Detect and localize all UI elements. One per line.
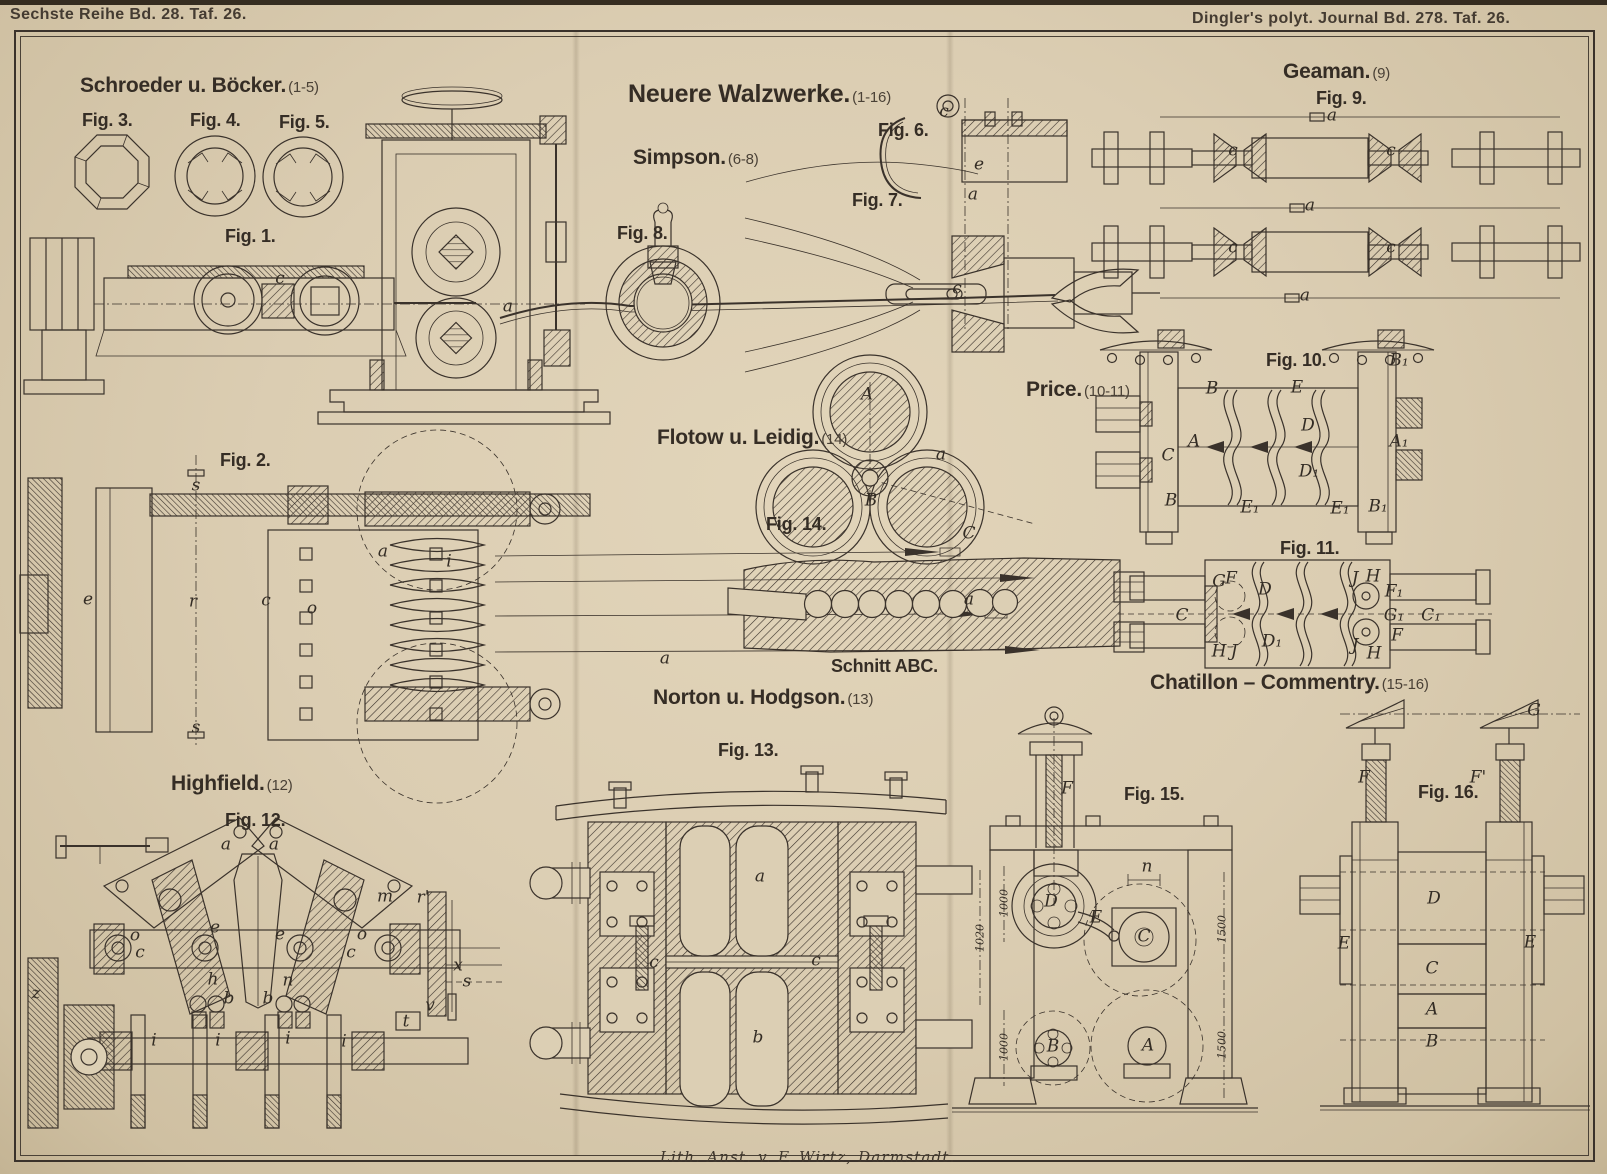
part-label-fig14: C (962, 526, 975, 543)
figure-title-fig15: Fig. 15. (1124, 784, 1184, 805)
part-label-fig12: b (224, 991, 235, 1008)
part-label-fig11: F (1391, 628, 1403, 645)
part-label-fig9: c (1386, 240, 1396, 257)
part-label-fig14: B (865, 493, 878, 510)
part-label-fig11: C (1175, 608, 1188, 625)
part-label-fig16: A (1426, 1002, 1438, 1019)
part-label-fig16: F (1358, 770, 1370, 787)
part-label-fig15: 1500 (1217, 1031, 1228, 1059)
section-label-norton: Norton u. Hodgson.(13) (653, 686, 873, 710)
part-label-fig2: a (660, 651, 670, 668)
part-label-fig16: B (1426, 1034, 1439, 1051)
part-label-fig2: i (446, 554, 451, 571)
part-label-fig2: s (192, 720, 201, 737)
part-label-fig12: x (453, 958, 463, 975)
part-label-fig9: c (1386, 143, 1396, 160)
part-label-fig11: G (1212, 574, 1226, 591)
part-label-fig1: a (503, 299, 513, 316)
part-label-fig15: D (1044, 894, 1058, 911)
part-label-fig12: e (210, 920, 220, 937)
part-label-fig12: m (377, 889, 393, 906)
part-label-fig10: B (1165, 493, 1178, 510)
figure-title-fig11: Fig. 11. (1280, 538, 1339, 559)
part-label-fig10: B₁ (1389, 353, 1408, 370)
plate-title: Neuere Walzwerke.(1-16) (628, 80, 891, 109)
label-layer: Sechste Reihe Bd. 28. Taf. 26. Dingler's… (0, 0, 1607, 1174)
part-label-fig12: n (283, 973, 294, 990)
part-label-fig15: C (1137, 929, 1150, 946)
part-label-fig12: s (463, 974, 472, 991)
section-label-schroeder: Schroeder u. Böcker.(1-5) (80, 74, 319, 98)
part-label-fig12: r' (417, 890, 430, 907)
part-label-fig11: J (1352, 638, 1359, 655)
part-label-fig12: v (425, 998, 435, 1015)
header-left: Sechste Reihe Bd. 28. Taf. 26. (10, 6, 247, 24)
part-label-fig6: e (974, 157, 984, 174)
part-label-fig9: c (1228, 240, 1238, 257)
part-label-fig10: E₁ (1240, 500, 1259, 517)
section-label-highfield: Highfield.(12) (171, 772, 293, 796)
part-label-fig12: b (263, 991, 274, 1008)
part-label-fig12: i (151, 1033, 156, 1050)
part-label-fig15: 1020 (975, 924, 986, 952)
figure-title-fig14: Fig. 14. (766, 514, 826, 535)
part-label-fig2: r (189, 594, 197, 611)
part-label-fig13: b (753, 1030, 764, 1047)
figure-title-fig1: Fig. 1. (225, 226, 276, 247)
figure-title-fig9: Fig. 9. (1316, 88, 1367, 109)
figure-title-fig10: Fig. 10. (1266, 350, 1326, 371)
part-label-fig10: B₁ (1368, 499, 1387, 516)
part-label-fig15: E (1090, 910, 1102, 927)
part-label-fig6: a (968, 187, 978, 204)
figure-title-fig6: Fig. 6. (878, 120, 929, 141)
part-label-fig12: a (221, 837, 231, 854)
figure-title-fig2: Fig. 2. (220, 450, 271, 471)
part-label-fig15: n (1142, 859, 1153, 876)
part-label-fig10: D (1301, 418, 1315, 435)
part-label-fig11: G₁ (1384, 608, 1404, 625)
section-label-chatillon: Chatillon – Commentry.(15-16) (1150, 671, 1429, 695)
figure-title-fig7: Fig. 7. (852, 190, 903, 211)
part-label-fig13: c (649, 955, 659, 972)
part-label-fig9: a (1300, 288, 1310, 305)
lithograph-plate: Sechste Reihe Bd. 28. Taf. 26. Dingler's… (0, 0, 1607, 1174)
part-label-fig11: C₁ (1421, 608, 1441, 625)
part-label-fig15: F (1061, 781, 1073, 798)
figure-title-schnitt: Schnitt ABC. (831, 656, 938, 677)
part-label-fig11: F₁ (1385, 584, 1404, 601)
part-label-fig11: D₁ (1262, 634, 1282, 651)
part-label-fig12: o (357, 927, 367, 944)
part-label-fig12: i (341, 1034, 346, 1051)
part-label-fig16: F' (1470, 770, 1486, 787)
figure-title-fig4: Fig. 4. (190, 110, 241, 131)
part-label-fig11: J (1231, 644, 1238, 661)
header-right: Dingler's polyt. Journal Bd. 278. Taf. 2… (1192, 10, 1510, 28)
figure-title-fig12: Fig. 12. (225, 810, 285, 831)
part-label-fig16: D (1427, 891, 1441, 908)
part-label-fig15: A (1142, 1038, 1154, 1055)
part-label-fig11: H (1367, 646, 1382, 663)
part-label-fig2: a (378, 544, 388, 561)
part-label-fig10: B (1206, 381, 1219, 398)
part-label-fig2: s (192, 478, 201, 495)
part-label-fig2: e (83, 592, 93, 609)
part-label-fig12: a (269, 837, 279, 854)
part-label-fig1: c (275, 271, 285, 288)
part-label-fig12: c (346, 945, 356, 962)
part-label-fig12: t (403, 1014, 410, 1031)
part-label-fig12: i (215, 1033, 220, 1050)
part-label-fig9: c (1228, 143, 1238, 160)
part-label-fig11: H (1366, 569, 1381, 586)
part-label-fig6: c (939, 104, 949, 121)
part-label-fig15: 1000 (999, 1033, 1010, 1061)
part-label-fig7: c (952, 281, 962, 298)
section-label-flotow: Flotow u. Leidig.(14) (657, 426, 847, 450)
part-label-fig16: C (1425, 961, 1438, 978)
part-label-fig11: H (1212, 644, 1227, 661)
part-label-fig10: E₁ (1330, 501, 1349, 518)
part-label-fig16: E (1338, 936, 1350, 953)
part-label-fig2: o (307, 601, 317, 618)
part-label-fig2: c (261, 593, 271, 610)
part-label-fig15: 1000 (999, 889, 1010, 917)
part-label-fig12: z (32, 986, 41, 1003)
part-label-fig16: G (1527, 703, 1541, 720)
part-label-fig11: J (1352, 571, 1359, 588)
figure-title-fig5: Fig. 5. (279, 112, 330, 133)
part-label-fig10: A (1188, 434, 1200, 451)
part-label-fig12: c (135, 945, 145, 962)
part-label-fig11: F (1225, 571, 1237, 588)
plate-title-text: Neuere Walzwerke. (628, 80, 850, 108)
part-label-fig9: a (1305, 198, 1315, 215)
part-label-fig10: C (1161, 448, 1174, 465)
part-label-fig10: E (1291, 380, 1303, 397)
part-label-fig16: E (1524, 935, 1536, 952)
part-label-fig12: e (275, 927, 285, 944)
part-label-fig14: A (861, 387, 873, 404)
part-label-fig10: D₁ (1299, 464, 1319, 481)
part-label-fig10: A₁ (1389, 434, 1408, 451)
part-label-fig11: D (1258, 582, 1272, 599)
part-label-fig13: a (755, 869, 765, 886)
figure-title-fig13: Fig. 13. (718, 740, 778, 761)
part-label-fig14: a (936, 447, 946, 464)
part-label-schnitt: a (964, 592, 974, 609)
part-label-fig9: a (1327, 108, 1337, 125)
plate-title-range: (1-16) (852, 89, 891, 106)
section-label-simpson: Simpson.(6-8) (633, 146, 759, 170)
section-label-price: Price.(10-11) (1026, 378, 1130, 402)
lithographer-credit: Lith. Anst. v. F. Wirtz, Darmstadt. (660, 1148, 956, 1166)
figure-title-fig3: Fig. 3. (82, 110, 133, 131)
part-label-fig15: 1500 (1217, 915, 1228, 943)
part-label-fig12: i (285, 1031, 290, 1048)
part-label-fig13: c (811, 953, 821, 970)
figure-title-fig8: Fig. 8. (617, 223, 668, 244)
part-label-fig12: h (208, 972, 219, 989)
part-label-fig15: B (1047, 1039, 1060, 1056)
section-label-geaman: Geaman.(9) (1283, 60, 1390, 84)
